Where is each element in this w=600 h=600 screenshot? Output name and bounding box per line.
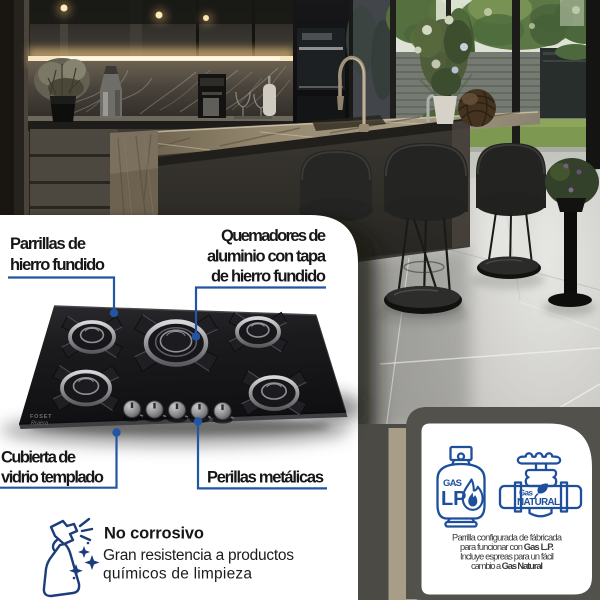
svg-text:Parrillas de: Parrillas de [10,235,86,253]
svg-text:No corrosivo: No corrosivo [104,525,204,543]
svg-text:Parrilla configurada de fábric: Parrilla configurada de fábricada [452,533,563,543]
svg-text:de hierro fundido: de hierro fundido [211,268,326,286]
svg-text:químicos de limpieza: químicos de limpieza [103,566,252,583]
svg-text:Perillas metálicas: Perillas metálicas [207,469,324,487]
svg-text:Gran resistencia a productos: Gran resistencia a productos [103,547,294,564]
svg-text:aluminio con tapa: aluminio con tapa [207,248,327,266]
svg-text:hierro fundido: hierro fundido [10,256,105,274]
svg-text:FOSET: FOSET [30,414,52,420]
svg-text:Quemadores de: Quemadores de [221,227,326,245]
svg-text:NATURAL: NATURAL [517,497,560,508]
svg-text:Cubierta de: Cubierta de [1,449,76,467]
svg-text:vidrio templado: vidrio templado [1,469,104,487]
svg-text:para funcionar con Gas L.P.: para funcionar con Gas L.P. [460,542,554,552]
svg-text:Incluye espreas para un fácil: Incluye espreas para un fácil [460,552,554,562]
svg-text:cambio a Gas Natural: cambio a Gas Natural [471,561,543,571]
svg-text:Riviera: Riviera [31,421,48,427]
